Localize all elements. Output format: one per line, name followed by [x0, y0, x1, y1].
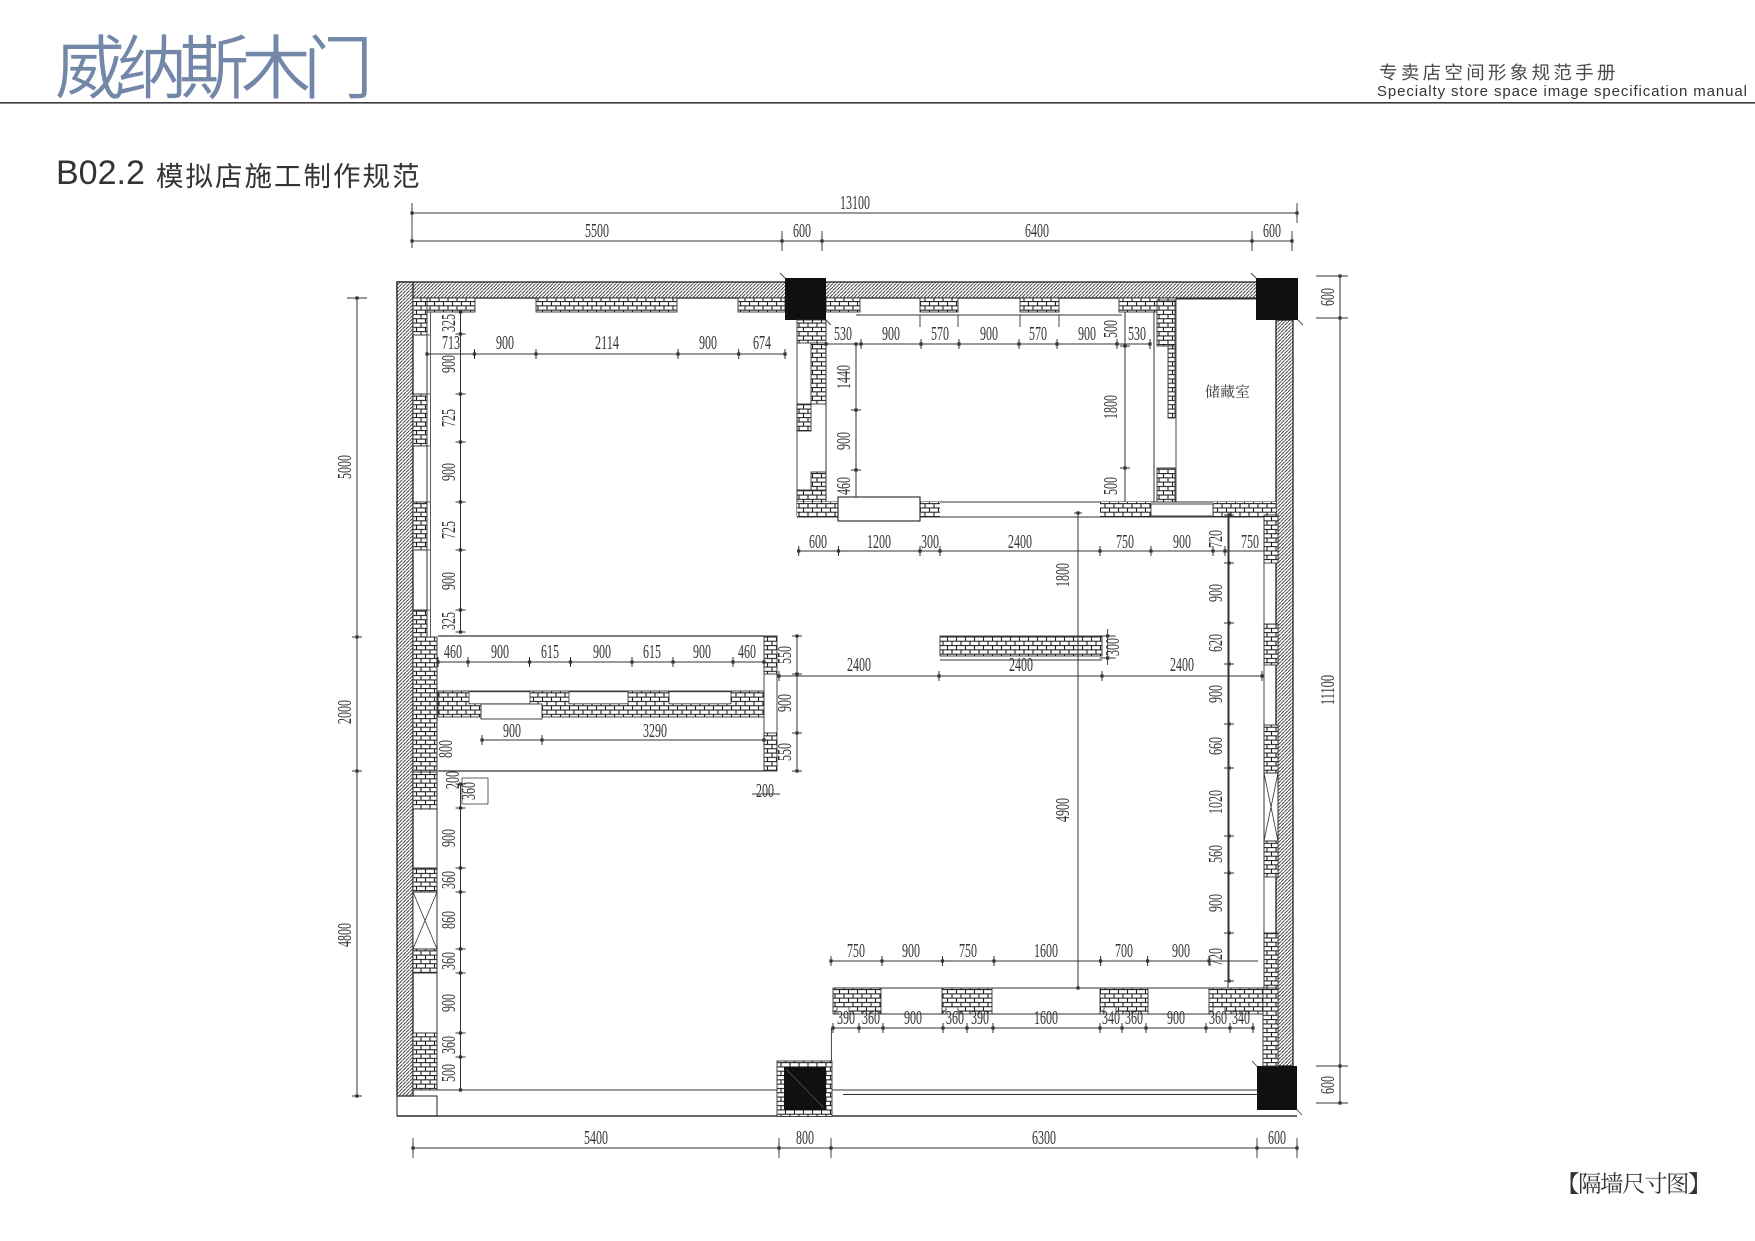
svg-text:620: 620 — [1205, 634, 1227, 652]
svg-text:1440: 1440 — [833, 365, 855, 389]
svg-text:900: 900 — [438, 829, 460, 847]
svg-text:325: 325 — [438, 314, 460, 332]
svg-text:900: 900 — [833, 432, 855, 450]
svg-text:900: 900 — [774, 694, 796, 712]
svg-text:660: 660 — [1205, 737, 1227, 755]
svg-text:200: 200 — [756, 780, 774, 802]
svg-text:300: 300 — [921, 531, 939, 553]
svg-text:B02.2: B02.2 — [56, 154, 145, 192]
svg-text:1200: 1200 — [867, 531, 891, 553]
svg-text:900: 900 — [1172, 940, 1190, 962]
svg-text:2400: 2400 — [847, 654, 871, 676]
svg-text:300: 300 — [1102, 638, 1124, 656]
svg-text:500: 500 — [438, 1064, 460, 1082]
svg-text:1800: 1800 — [1052, 563, 1074, 587]
svg-text:600: 600 — [1268, 1127, 1286, 1149]
svg-text:13100: 13100 — [840, 192, 870, 214]
svg-text:4900: 4900 — [1052, 798, 1074, 822]
svg-text:460: 460 — [444, 641, 462, 663]
svg-text:600: 600 — [809, 531, 827, 553]
svg-text:900: 900 — [438, 994, 460, 1012]
svg-text:1020: 1020 — [1205, 790, 1227, 814]
svg-text:900: 900 — [882, 323, 900, 345]
svg-text:900: 900 — [438, 355, 460, 373]
svg-text:1600: 1600 — [1034, 940, 1058, 962]
svg-text:500: 500 — [1100, 477, 1122, 495]
svg-text:900: 900 — [1205, 894, 1227, 912]
svg-text:900: 900 — [1078, 323, 1096, 345]
svg-text:725: 725 — [438, 409, 460, 427]
svg-text:6300: 6300 — [1032, 1127, 1056, 1149]
svg-text:600: 600 — [1263, 220, 1281, 242]
svg-text:5400: 5400 — [584, 1127, 608, 1149]
svg-text:360: 360 — [1125, 1007, 1143, 1029]
svg-text:530: 530 — [834, 323, 852, 345]
svg-text:6400: 6400 — [1025, 220, 1049, 242]
svg-text:5500: 5500 — [585, 220, 609, 242]
svg-text:600: 600 — [793, 220, 811, 242]
svg-text:900: 900 — [438, 572, 460, 590]
svg-text:900: 900 — [1205, 685, 1227, 703]
svg-text:460: 460 — [738, 641, 756, 663]
svg-text:570: 570 — [1029, 323, 1047, 345]
svg-text:900: 900 — [902, 940, 920, 962]
svg-text:Specialty store space image sp: Specialty store space image specificatio… — [1377, 83, 1748, 100]
svg-text:340: 340 — [1232, 1007, 1250, 1029]
svg-text:360: 360 — [1209, 1007, 1227, 1029]
svg-text:500: 500 — [1100, 320, 1122, 338]
svg-text:900: 900 — [693, 641, 711, 663]
svg-text:360: 360 — [438, 1036, 460, 1054]
svg-text:674: 674 — [753, 332, 771, 354]
svg-text:360: 360 — [438, 871, 460, 889]
svg-text:600: 600 — [1317, 288, 1339, 306]
svg-text:550: 550 — [774, 743, 796, 761]
svg-text:1800: 1800 — [1100, 395, 1122, 419]
svg-text:900: 900 — [904, 1007, 922, 1029]
svg-text:5000: 5000 — [334, 455, 356, 479]
svg-text:900: 900 — [503, 720, 521, 742]
svg-text:600: 600 — [1317, 1076, 1339, 1094]
svg-text:750: 750 — [959, 940, 977, 962]
svg-text:2400: 2400 — [1009, 654, 1033, 676]
svg-text:900: 900 — [1205, 584, 1227, 602]
svg-text:750: 750 — [1116, 531, 1134, 553]
svg-text:900: 900 — [438, 463, 460, 481]
svg-text:900: 900 — [980, 323, 998, 345]
svg-text:4800: 4800 — [334, 923, 356, 947]
svg-text:560: 560 — [1205, 845, 1227, 863]
svg-text:900: 900 — [496, 332, 514, 354]
svg-text:900: 900 — [593, 641, 611, 663]
svg-text:340: 340 — [1102, 1007, 1120, 1029]
svg-text:615: 615 — [643, 641, 661, 663]
svg-text:460: 460 — [833, 477, 855, 495]
svg-text:713: 713 — [442, 332, 460, 354]
svg-text:750: 750 — [1241, 531, 1259, 553]
svg-text:570: 570 — [931, 323, 949, 345]
svg-text:900: 900 — [1167, 1007, 1185, 1029]
svg-text:11100: 11100 — [1317, 675, 1339, 705]
svg-text:700: 700 — [1115, 940, 1133, 962]
svg-text:530: 530 — [1128, 323, 1146, 345]
svg-text:325: 325 — [438, 612, 460, 630]
svg-text:720: 720 — [1205, 530, 1227, 548]
svg-text:390: 390 — [971, 1007, 989, 1029]
svg-text:360: 360 — [862, 1007, 880, 1029]
svg-text:900: 900 — [1173, 531, 1191, 553]
svg-text:860: 860 — [438, 911, 460, 929]
svg-text:3290: 3290 — [643, 720, 667, 742]
svg-text:360: 360 — [438, 952, 460, 970]
svg-text:2114: 2114 — [595, 332, 619, 354]
svg-text:800: 800 — [796, 1127, 814, 1149]
svg-text:725: 725 — [438, 521, 460, 539]
svg-text:2400: 2400 — [1008, 531, 1032, 553]
svg-text:2400: 2400 — [1170, 654, 1194, 676]
svg-text:900: 900 — [699, 332, 717, 354]
svg-text:2000: 2000 — [334, 700, 356, 724]
svg-text:800: 800 — [435, 740, 457, 758]
svg-text:900: 900 — [491, 641, 509, 663]
svg-text:390: 390 — [837, 1007, 855, 1029]
svg-text:360: 360 — [946, 1007, 964, 1029]
svg-text:615: 615 — [541, 641, 559, 663]
svg-text:1600: 1600 — [1034, 1007, 1058, 1029]
svg-text:750: 750 — [847, 940, 865, 962]
svg-text:550: 550 — [774, 646, 796, 664]
svg-text:720: 720 — [1205, 948, 1227, 966]
